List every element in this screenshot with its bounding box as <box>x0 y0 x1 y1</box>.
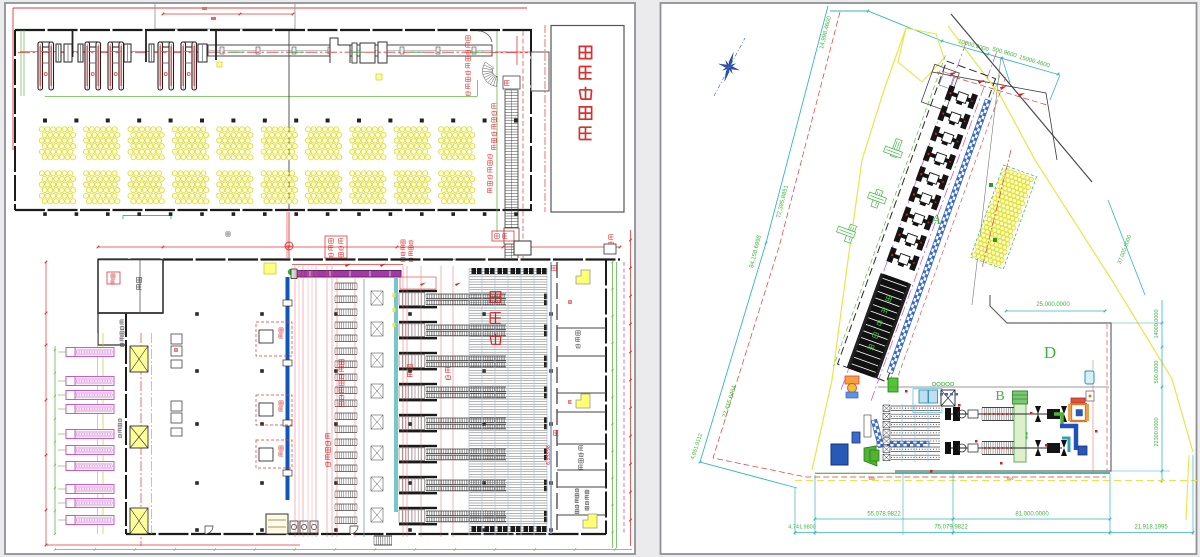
svg-text:D: D <box>1044 343 1056 362</box>
svg-text:14000.0000: 14000.0000 <box>1154 309 1160 338</box>
svg-text:21,918.1995: 21,918.1995 <box>1134 525 1168 531</box>
svg-text:6,333.98: 6,333.98 <box>546 445 552 465</box>
svg-text:81,000.0000: 81,000.0000 <box>1015 512 1049 518</box>
svg-text:75,079.9822: 75,079.9822 <box>934 525 968 531</box>
svg-text:B: B <box>995 389 1004 404</box>
svg-text:500.0000: 500.0000 <box>1154 361 1160 384</box>
svg-text:25,000.0000: 25,000.0000 <box>1036 302 1070 308</box>
svg-text:4,741.9800: 4,741.9800 <box>788 525 816 531</box>
svg-text:A: A <box>930 212 941 228</box>
svg-text:22300.0000: 22300.0000 <box>1154 417 1160 446</box>
svg-text:55,078.9822: 55,078.9822 <box>867 512 901 518</box>
